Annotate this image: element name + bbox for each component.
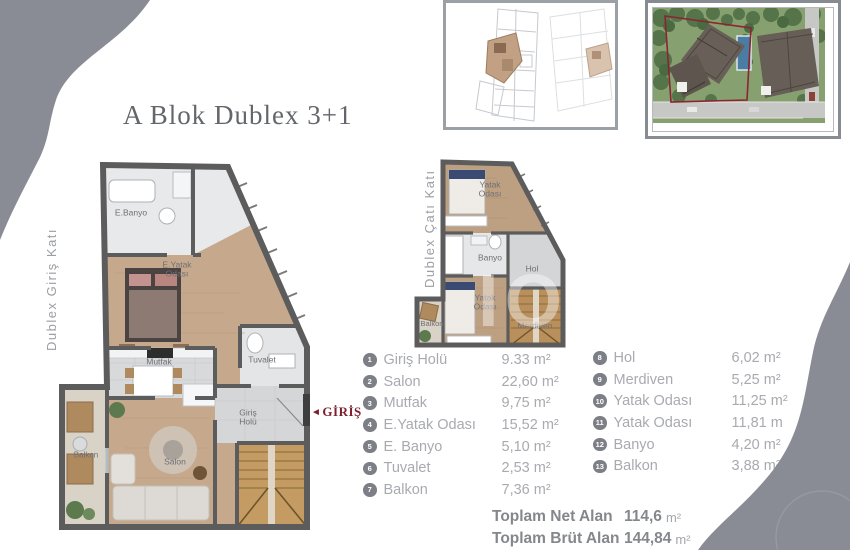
floorplan-sheet: A Blok Dublex 3+1 xyxy=(0,0,850,550)
room-label-tuvalet: Tuvalet xyxy=(232,355,292,364)
roof-floor-plan: Yatak Odası Banyo Hol Yatak Odası Merdiv… xyxy=(413,158,568,350)
room-label-balkon-2: Balkon xyxy=(412,320,452,328)
room-label-yatak-odasi-2: Yatak Odası xyxy=(466,294,504,313)
room-label-yatak-odasi-1: Yatak Odası xyxy=(471,181,509,200)
room-label-banyo: Banyo xyxy=(460,253,520,262)
room-label-hol: Hol xyxy=(512,264,552,273)
room-label-balkon-1: Balkon xyxy=(64,452,108,461)
room-label-eyatak: E.Yatak Odası xyxy=(153,261,201,280)
room-label-giris-holu: Giriş Holü xyxy=(233,409,263,428)
corner-blob-bottom-right xyxy=(698,262,850,550)
room-label-mutfak: Mutfak xyxy=(129,357,189,366)
room-label-merdiven: Merdiven xyxy=(505,321,565,330)
plan1-plant xyxy=(109,402,125,418)
room-label-ebanyo: E.Banyo xyxy=(101,208,161,217)
ground-floor-plan: E.Banyo E.Yatak Odası Mutfak Tuvalet Gir… xyxy=(55,158,315,532)
ground-floor-plan-drawing xyxy=(55,158,315,532)
room-label-salon: Salon xyxy=(145,457,205,466)
